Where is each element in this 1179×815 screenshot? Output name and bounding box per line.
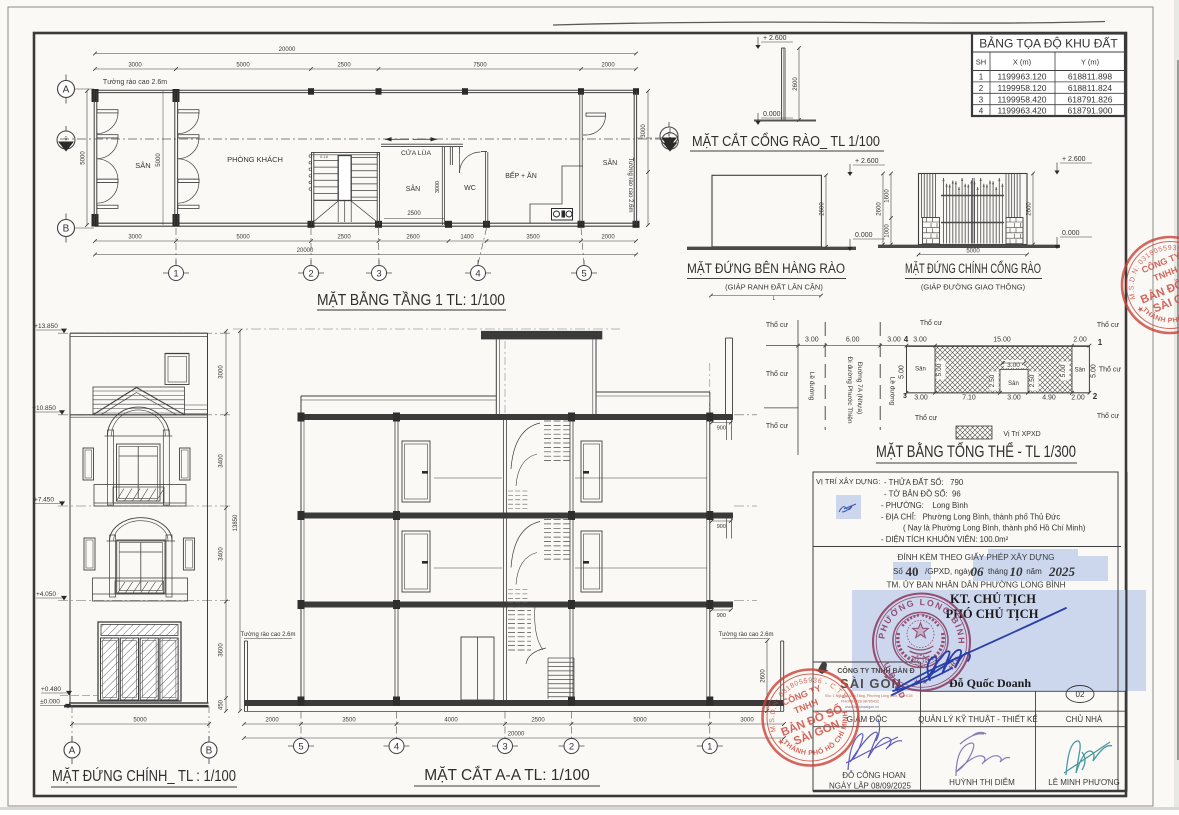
svg-text:20000: 20000 — [279, 47, 296, 53]
svg-text:A: A — [69, 746, 76, 757]
svg-text:MẶT ĐỨNG CHÍNH CỔNG RÀO: MẶT ĐỨNG CHÍNH CỔNG RÀO — [905, 261, 1041, 276]
svg-text:5000: 5000 — [133, 718, 147, 724]
svg-text:Thổ cư: Thổ cư — [1097, 321, 1120, 329]
svg-text:618791.900: 618791.900 — [1068, 106, 1113, 116]
svg-text:2500: 2500 — [407, 211, 421, 217]
svg-text:900: 900 — [717, 524, 726, 530]
svg-text:www.bandosaigon.vn: www.bandosaigon.vn — [845, 705, 879, 709]
svg-text:40: 40 — [906, 564, 919, 579]
svg-text:900: 900 — [717, 426, 726, 432]
svg-text:2600: 2600 — [1027, 202, 1033, 216]
svg-text:SÂN: SÂN — [135, 161, 150, 170]
svg-text:6.00: 6.00 — [846, 337, 860, 344]
svg-text:Thổ cư: Thổ cư — [766, 422, 789, 430]
svg-text:1000: 1000 — [885, 224, 891, 238]
svg-text:Tường rào cao 2.6m: Tường rào cao 2.6m — [719, 632, 774, 638]
svg-text:Thổ cư: Thổ cư — [1099, 366, 1122, 374]
svg-text:3400: 3400 — [219, 454, 225, 468]
svg-text:SÂN: SÂN — [603, 158, 617, 167]
svg-text:3.00: 3.00 — [1007, 395, 1021, 402]
svg-text:7.10: 7.10 — [962, 395, 976, 402]
svg-text:PHONE: 028.98765432: PHONE: 028.98765432 — [841, 700, 879, 704]
svg-text:v: v — [669, 138, 672, 144]
svg-text:+13.850: +13.850 — [34, 323, 58, 330]
svg-text:+ 2.600: + 2.600 — [1062, 156, 1086, 163]
svg-text:3.00: 3.00 — [914, 395, 928, 402]
svg-text:Lề đường: Lề đường — [889, 377, 898, 406]
svg-text:2: 2 — [569, 742, 574, 753]
svg-text:(GIÁP ĐƯỜNG GIAO THÔNG): (GIÁP ĐƯỜNG GIAO THÔNG) — [921, 283, 1026, 292]
svg-text:2600: 2600 — [793, 77, 799, 91]
svg-text:2: 2 — [979, 84, 984, 93]
svg-text:GIÁM ĐỐC: GIÁM ĐỐC — [847, 714, 888, 724]
svg-text:1199958.120: 1199958.120 — [997, 83, 1046, 93]
svg-text:5.00: 5.00 — [899, 365, 906, 379]
svg-text:3000: 3000 — [435, 181, 441, 193]
svg-text:5.00: 5.00 — [936, 363, 943, 376]
svg-text:1199963.120: 1199963.120 — [997, 72, 1046, 82]
svg-text:4: 4 — [904, 335, 909, 344]
svg-text:0-16: 0-16 — [320, 154, 329, 159]
svg-text:năm: năm — [1026, 567, 1042, 576]
svg-text:5000: 5000 — [633, 718, 647, 724]
svg-text:CÔNG TY TNHH BẢN Đ: CÔNG TY TNHH BẢN Đ — [837, 666, 914, 675]
svg-text:1: 1 — [979, 73, 984, 82]
svg-text:1: 1 — [173, 269, 178, 280]
svg-text:5.00: 5.00 — [1060, 364, 1067, 377]
svg-text:A: A — [63, 85, 70, 96]
svg-text:0.000: 0.000 — [763, 111, 781, 118]
svg-text:SH: SH — [976, 58, 986, 67]
svg-text:1600: 1600 — [885, 189, 891, 203]
svg-text:Sân: Sân — [1008, 381, 1019, 387]
svg-text:2500: 2500 — [337, 63, 351, 69]
svg-text:v: v — [65, 137, 68, 143]
svg-text:13850: 13850 — [233, 514, 239, 531]
svg-text:NGÀY LẬP 08/09/2025: NGÀY LẬP 08/09/2025 — [829, 782, 912, 791]
svg-text:Lề đường: Lề đường — [808, 372, 817, 401]
svg-text:L: L — [773, 296, 776, 302]
svg-text:ĐỖ CÔNG HOAN: ĐỖ CÔNG HOAN — [842, 771, 906, 780]
svg-text:3.00: 3.00 — [913, 337, 927, 344]
svg-text:2.00: 2.00 — [1071, 395, 1085, 402]
svg-text:2600: 2600 — [820, 202, 826, 216]
svg-text:4000: 4000 — [444, 718, 458, 724]
svg-text:1199963.420: 1199963.420 — [997, 106, 1046, 116]
svg-text:02: 02 — [1076, 690, 1085, 699]
svg-text:2.50: 2.50 — [989, 374, 996, 387]
svg-text:7500: 7500 — [473, 63, 487, 69]
svg-text:3: 3 — [979, 95, 984, 104]
svg-text:Tường rào cao 2.6m: Tường rào cao 2.6m — [241, 632, 296, 638]
svg-text:Vị Trí XPXD: Vị Trí XPXD — [1003, 431, 1040, 438]
svg-text:Thổ cư: Thổ cư — [766, 370, 789, 378]
svg-text:KT. CHỦ TỊCH: KT. CHỦ TỊCH — [950, 592, 1036, 606]
svg-text:5.00: 5.00 — [1091, 364, 1098, 378]
svg-text:MẶT CẮT A-A TL: 1/100: MẶT CẮT A-A TL: 1/100 — [424, 766, 590, 784]
svg-text:3400: 3400 — [219, 547, 225, 561]
svg-text:5000: 5000 — [236, 235, 250, 241]
svg-text:X (m): X (m) — [1013, 58, 1032, 67]
svg-text:Số: Số — [893, 567, 903, 576]
svg-text:Đỗ Quốc Doanh: Đỗ Quốc Doanh — [949, 676, 1031, 690]
svg-text:QUẢN LÝ KỸ THUẬT - THIẾT KẾ: QUẢN LÝ KỸ THUẬT - THIẾT KẾ — [918, 714, 1037, 724]
svg-text:1: 1 — [1098, 338, 1103, 347]
svg-text:5000: 5000 — [236, 63, 250, 69]
svg-text:B: B — [206, 746, 213, 757]
svg-text:618811.898: 618811.898 — [1068, 72, 1113, 82]
svg-text:/GPXD, ngày: /GPXD, ngày — [925, 567, 972, 576]
svg-text:SÂN: SÂN — [406, 184, 420, 193]
svg-text:3: 3 — [502, 742, 507, 753]
svg-text:4: 4 — [394, 742, 399, 753]
svg-text:2500: 2500 — [531, 718, 545, 724]
svg-text:2600: 2600 — [406, 235, 420, 241]
svg-text:2600: 2600 — [877, 202, 883, 216]
svg-text:BẢNG TỌA ĐỘ KHU ĐẤT: BẢNG TỌA ĐỘ KHU ĐẤT — [979, 36, 1118, 51]
svg-text:5: 5 — [581, 269, 586, 280]
svg-text:2025: 2025 — [1048, 564, 1076, 579]
svg-text:3: 3 — [376, 269, 381, 280]
svg-text:+ 2.600: + 2.600 — [763, 35, 787, 42]
svg-text:3000: 3000 — [128, 235, 142, 241]
svg-text:3000: 3000 — [219, 365, 225, 379]
svg-text:Thổ cư: Thổ cư — [920, 319, 943, 327]
svg-text:Tường rào cao 2.6m: Tường rào cao 2.6m — [627, 158, 633, 213]
svg-text:4.90: 4.90 — [1042, 395, 1056, 402]
svg-text:0.000: 0.000 — [1062, 230, 1080, 237]
svg-text:10: 10 — [1010, 564, 1024, 579]
svg-text:2.50: 2.50 — [1029, 374, 1036, 387]
svg-text:- THỬA ĐẤT SỐ: 790: - THỬA ĐẤT SỐ: 790 — [884, 477, 964, 487]
svg-text:15.00: 15.00 — [993, 337, 1011, 344]
svg-text:Y (m): Y (m) — [1081, 58, 1100, 67]
svg-text:1199958.420: 1199958.420 — [997, 94, 1046, 104]
svg-text:3000: 3000 — [128, 63, 142, 69]
svg-text:Thổ cư: Thổ cư — [915, 414, 938, 422]
svg-text:4: 4 — [475, 269, 480, 280]
svg-text:3.00: 3.00 — [887, 337, 901, 344]
svg-text:MẶT BẰNG TỔNG THỂ - TL 1/300: MẶT BẰNG TỔNG THỂ - TL 1/300 — [876, 442, 1076, 461]
svg-text:( Nay là Phường Long Bình, thà: ( Nay là Phường Long Bình, thành phố Hồ … — [903, 524, 1086, 533]
svg-text:2000: 2000 — [265, 718, 279, 724]
svg-text:B: B — [63, 224, 70, 235]
svg-text:MẶT ĐỨNG CHÍNH_ TL : 1/100: MẶT ĐỨNG CHÍNH_ TL : 1/100 — [52, 768, 236, 785]
svg-text:MẶT CẮT CỔNG RÀO_ TL 1/100: MẶT CẮT CỔNG RÀO_ TL 1/100 — [692, 132, 880, 150]
svg-text:- ĐỊA CHỈ: Phường Long Bình,: - ĐỊA CHỈ: Phường Long Bình, thành phố T… — [881, 513, 1060, 522]
svg-text:PHÒNG KHÁCH: PHÒNG KHÁCH — [227, 155, 283, 164]
svg-text:+0.480: +0.480 — [41, 686, 61, 693]
svg-text:2.00: 2.00 — [1073, 337, 1087, 344]
svg-text:3000: 3000 — [641, 124, 647, 138]
svg-text:06: 06 — [971, 564, 985, 579]
svg-text:+4.050: +4.050 — [36, 591, 56, 598]
svg-text:1: 1 — [707, 742, 712, 753]
svg-text:+ 2.600: + 2.600 — [855, 158, 879, 165]
svg-text:5: 5 — [298, 742, 303, 753]
svg-text:+10.850: +10.850 — [32, 405, 56, 412]
svg-text:- TỜ BẢN ĐỒ SỐ: 96: - TỜ BẢN ĐỒ SỐ: 96 — [884, 489, 961, 499]
svg-text:WC: WC — [464, 185, 476, 192]
svg-text:2000: 2000 — [601, 63, 615, 69]
svg-text:Thổ cư: Thổ cư — [1097, 412, 1120, 420]
svg-text:450: 450 — [219, 699, 225, 710]
svg-text:Đường 7A (Nhựa): Đường 7A (Nhựa) — [856, 362, 863, 414]
svg-text:2: 2 — [308, 269, 313, 280]
svg-text:0.000: 0.000 — [855, 232, 873, 239]
svg-text:Đi đường Phước Thiện: Đi đường Phước Thiện — [846, 357, 853, 424]
svg-text:4: 4 — [979, 107, 984, 116]
svg-text:VỊ TRÍ XÂY DỰNG:: VỊ TRÍ XÂY DỰNG: — [816, 477, 880, 486]
svg-text:+7.450: +7.450 — [34, 497, 54, 504]
svg-text:(GIÁP RANH ĐẤT LÂN CẬN): (GIÁP RANH ĐẤT LÂN CẬN) — [725, 282, 823, 292]
svg-text:3000: 3000 — [740, 718, 754, 724]
svg-text:Tường rào cao 2.6m: Tường rào cao 2.6m — [103, 79, 167, 86]
svg-text:Thổ cư: Thổ cư — [766, 321, 789, 329]
svg-text:TM. ỦY BAN NHÂN DÂN PHƯỜNG LON: TM. ỦY BAN NHÂN DÂN PHƯỜNG LONG BÌNH — [887, 579, 1066, 590]
svg-text:3500: 3500 — [526, 235, 540, 241]
svg-text:HUỲNH THỊ DIỄM: HUỲNH THỊ DIỄM — [949, 778, 1015, 787]
svg-text:- DIỆN TÍCH KHUÔN VIÊN: 100.0m: - DIỆN TÍCH KHUÔN VIÊN: 100.0m² — [881, 535, 1009, 544]
svg-text:MẶT BẰNG TẦNG 1 TL: 1/100: MẶT BẰNG TẦNG 1 TL: 1/100 — [317, 291, 505, 309]
svg-text:618811.824: 618811.824 — [1068, 83, 1113, 93]
svg-text:Sân: Sân — [1075, 368, 1086, 374]
svg-text:2000: 2000 — [601, 235, 615, 241]
svg-text:LÊ MINH PHƯƠNG: LÊ MINH PHƯƠNG — [1048, 778, 1119, 787]
svg-text:5000: 5000 — [966, 249, 980, 255]
svg-text:2: 2 — [1093, 392, 1098, 401]
svg-text:2500: 2500 — [337, 235, 351, 241]
svg-text:tháng: tháng — [988, 567, 1008, 576]
svg-text:CỬA LÙA: CỬA LÙA — [401, 148, 431, 157]
svg-text:CHỦ NHÀ: CHỦ NHÀ — [1066, 715, 1103, 724]
svg-text:20000: 20000 — [297, 248, 314, 254]
svg-text:2600: 2600 — [761, 669, 767, 683]
svg-text:1400: 1400 — [460, 235, 474, 241]
svg-text:Sân: Sân — [915, 367, 926, 373]
svg-text:3500: 3500 — [342, 718, 356, 724]
svg-text:3.00: 3.00 — [805, 337, 819, 344]
svg-text:3: 3 — [903, 393, 907, 400]
svg-text:20000: 20000 — [508, 732, 525, 738]
svg-text:MẶT ĐỨNG BÊN HÀNG RÀO: MẶT ĐỨNG BÊN HÀNG RÀO — [687, 261, 845, 276]
svg-text:5000: 5000 — [156, 153, 162, 167]
svg-text:ĐÍNH KÈM THEO GIẤY PHÉP XÂY DỰ: ĐÍNH KÈM THEO GIẤY PHÉP XÂY DỰNG — [898, 552, 1055, 562]
svg-text:618791.826: 618791.826 — [1068, 94, 1113, 104]
svg-text:- PHƯỜNG: Long Bình: - PHƯỜNG: Long Bình — [881, 501, 968, 510]
svg-text:3600: 3600 — [219, 643, 225, 657]
svg-text:900: 900 — [717, 613, 726, 619]
svg-text:±0.000: ±0.000 — [40, 699, 60, 706]
svg-text:5000: 5000 — [81, 151, 87, 165]
